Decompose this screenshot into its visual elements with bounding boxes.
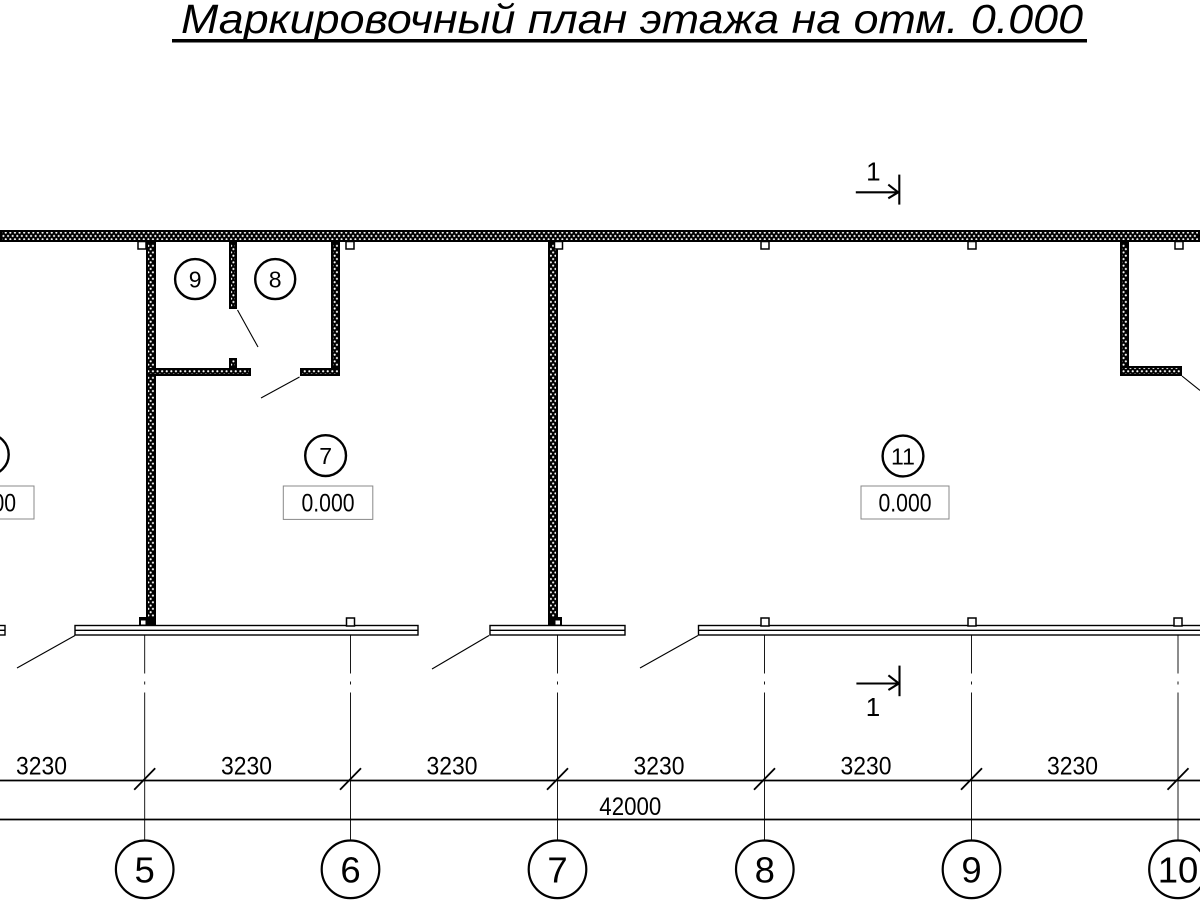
svg-text:3230: 3230 (221, 753, 272, 781)
svg-text:42000: 42000 (599, 793, 661, 821)
svg-text:3230: 3230 (427, 753, 478, 781)
svg-text:3230: 3230 (841, 753, 892, 781)
svg-text:9: 9 (189, 267, 202, 293)
svg-text:1: 1 (866, 157, 880, 187)
svg-text:7: 7 (319, 443, 332, 469)
svg-text:3230: 3230 (16, 753, 67, 781)
svg-text:7: 7 (547, 849, 567, 890)
svg-text:8: 8 (755, 849, 775, 890)
svg-text:0.000: 0.000 (879, 490, 932, 518)
svg-text:6: 6 (340, 849, 360, 890)
svg-text:Маркировочный план этажа на от: Маркировочный план этажа на отм. 0.000 (181, 0, 1083, 42)
svg-text:0.000: 0.000 (302, 490, 355, 518)
svg-text:8: 8 (269, 267, 282, 293)
svg-text:3230: 3230 (1047, 753, 1098, 781)
svg-text:9: 9 (961, 849, 981, 890)
svg-text:5: 5 (135, 849, 155, 890)
svg-text:3230: 3230 (634, 753, 685, 781)
svg-text:1: 1 (866, 692, 880, 722)
svg-text:0.000: 0.000 (0, 490, 16, 518)
svg-text:11: 11 (891, 443, 915, 469)
svg-text:10: 10 (1158, 849, 1199, 890)
